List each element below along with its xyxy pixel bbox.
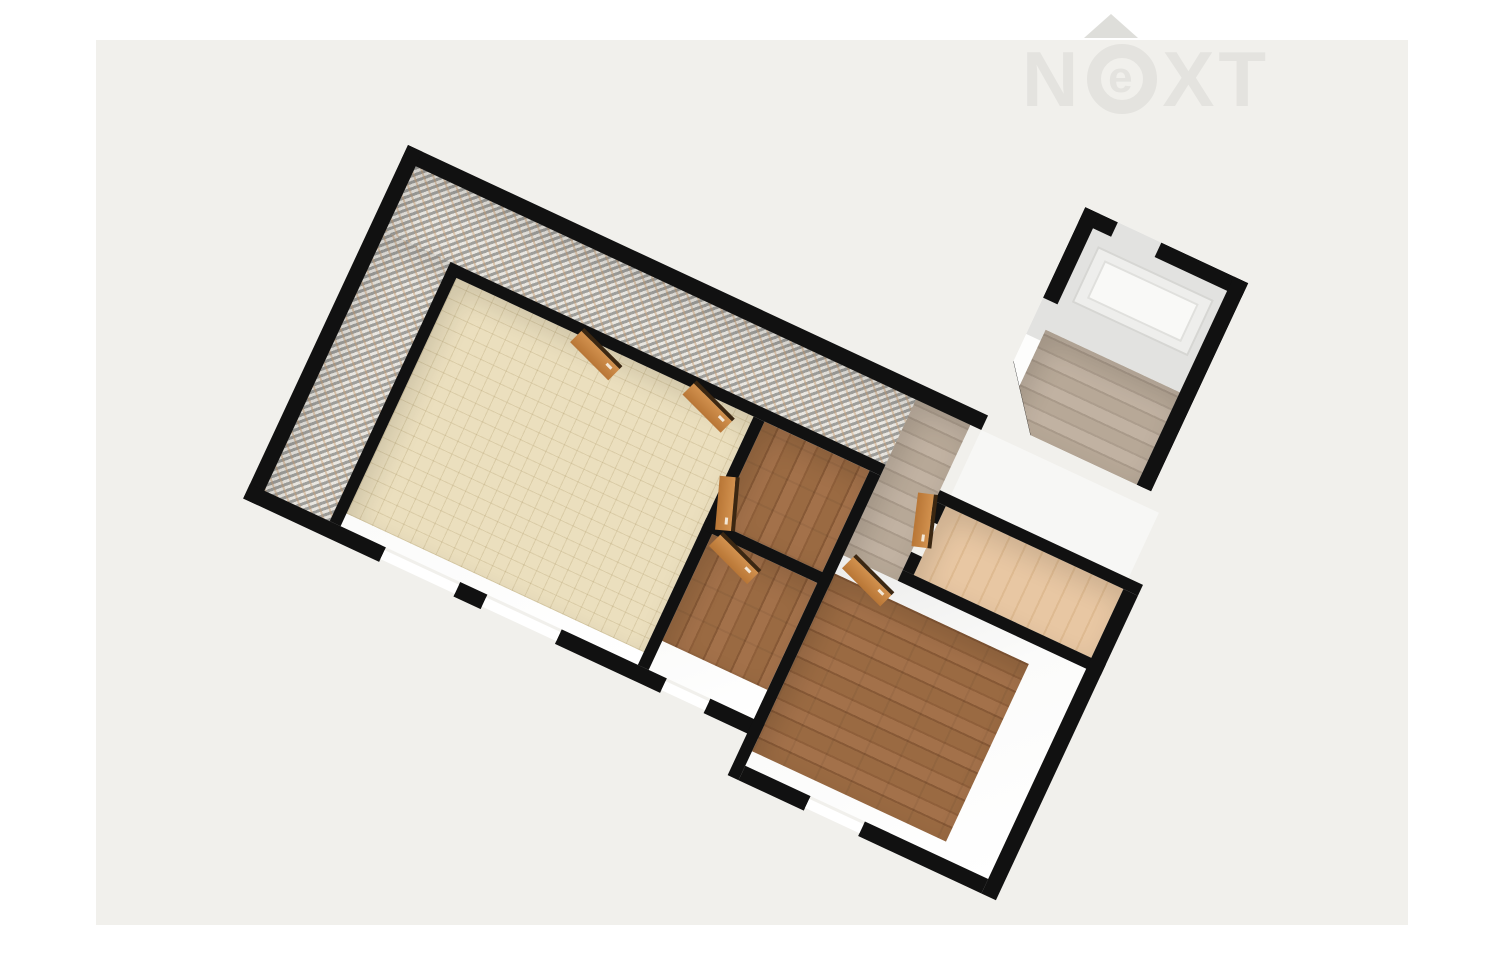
- next-logo-e-ring-icon: e: [1087, 44, 1157, 114]
- next-logo-letter-e: e: [1108, 56, 1136, 100]
- next-logo-letter-t: T: [1218, 34, 1270, 125]
- next-logo: N e X T: [1022, 36, 1270, 122]
- next-logo-letter-x: X: [1162, 34, 1218, 125]
- next-logo-roof-icon: [1084, 14, 1138, 38]
- next-logo-letter-n: N: [1022, 34, 1082, 125]
